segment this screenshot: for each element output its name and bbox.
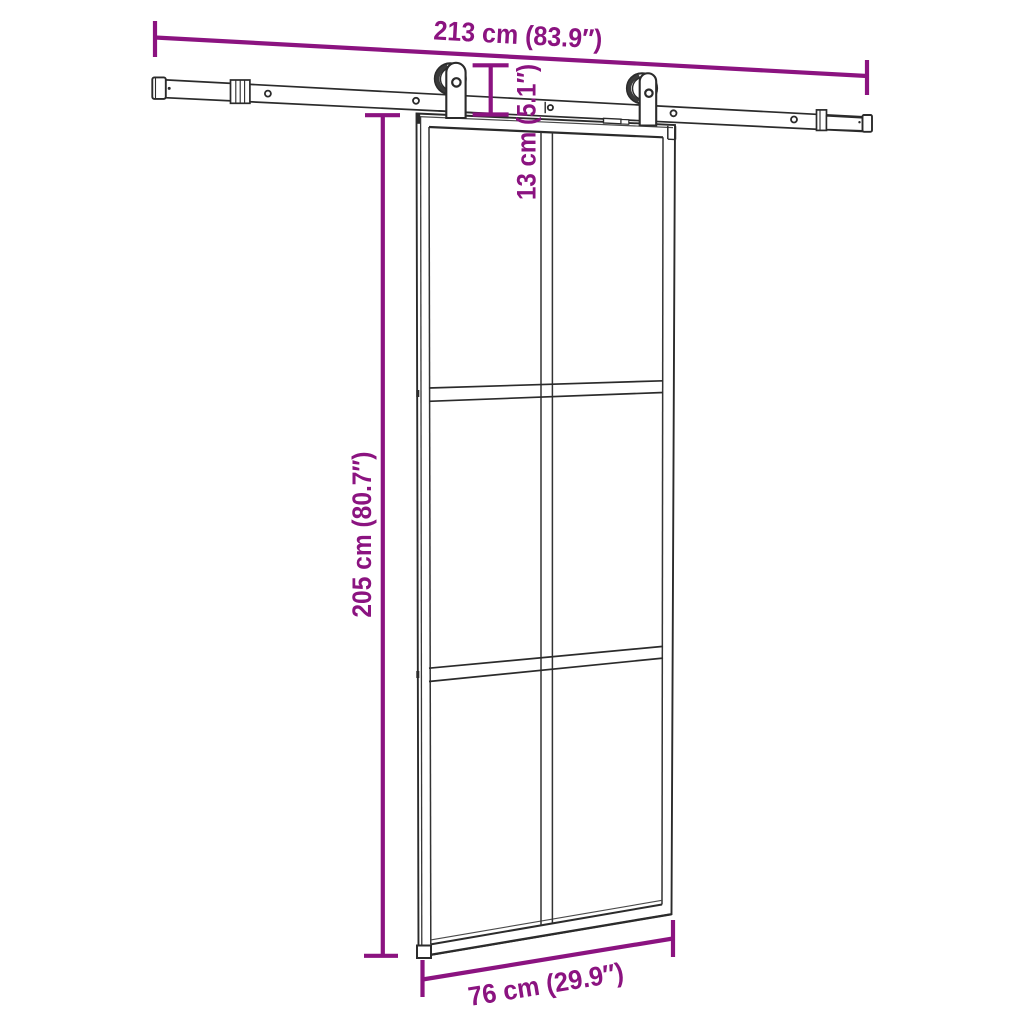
svg-text:13 cm (5.1″): 13 cm (5.1″) <box>512 64 542 200</box>
svg-text:205 cm (80.7″): 205 cm (80.7″) <box>347 452 377 618</box>
